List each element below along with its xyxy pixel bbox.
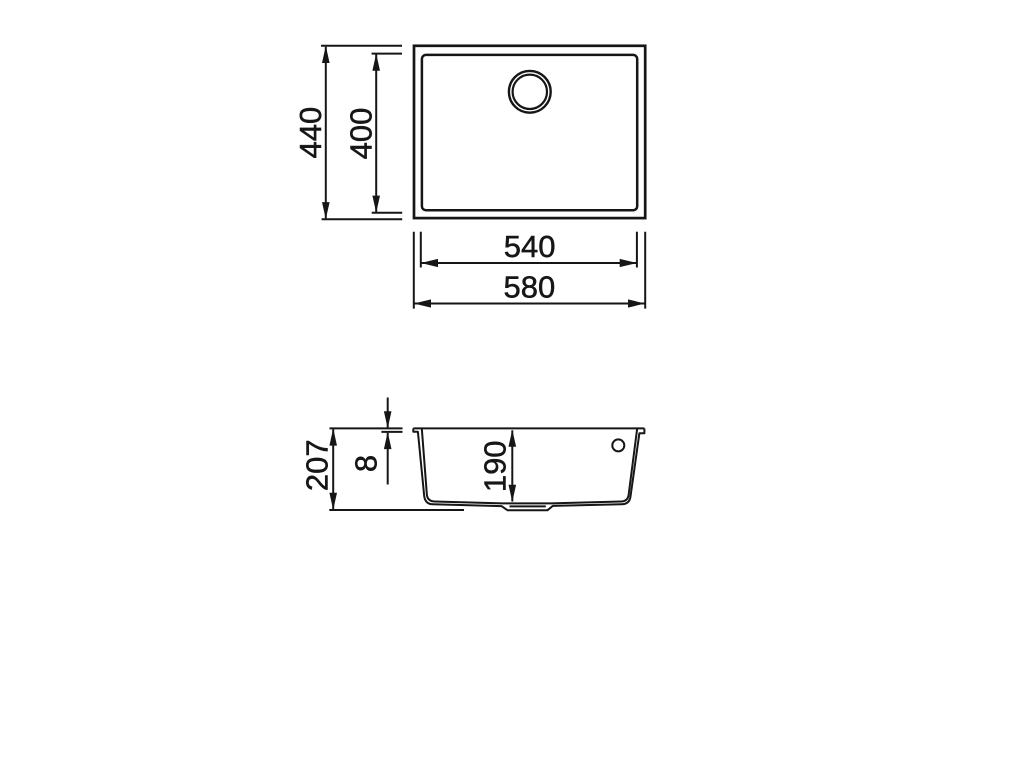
svg-text:540: 540: [504, 229, 556, 264]
svg-text:400: 400: [344, 108, 379, 160]
svg-text:8: 8: [349, 455, 384, 472]
svg-text:190: 190: [477, 440, 512, 492]
svg-text:580: 580: [504, 269, 556, 304]
svg-text:440: 440: [293, 107, 328, 159]
svg-text:207: 207: [300, 439, 335, 491]
